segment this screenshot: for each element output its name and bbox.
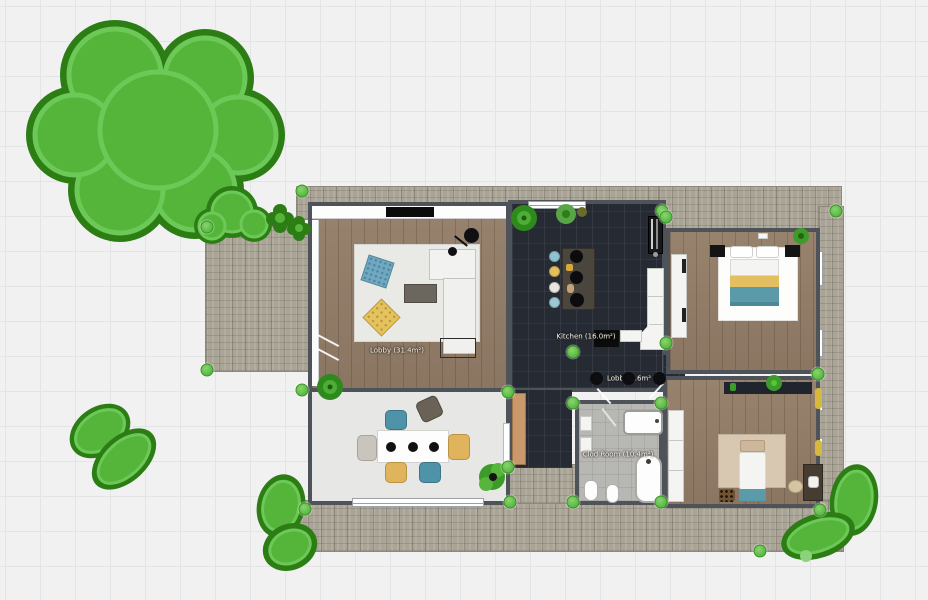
bidet[interactable] <box>606 484 619 503</box>
floor-lamp-shade[interactable] <box>464 228 479 243</box>
shower-drain <box>646 459 651 464</box>
island-decor-yellow <box>566 264 573 271</box>
vertex-handle[interactable] <box>814 504 827 517</box>
vertex-handle[interactable] <box>567 397 580 410</box>
vertex-handle[interactable] <box>201 221 214 234</box>
large-tree[interactable] <box>26 20 285 242</box>
bed1-sheet[interactable] <box>730 259 779 276</box>
door-swing-line-1 <box>317 334 339 347</box>
patio-left-patch[interactable] <box>205 226 309 372</box>
room-living[interactable] <box>308 202 510 392</box>
vertex-handle[interactable] <box>754 545 767 558</box>
bath-door-swing <box>602 408 617 426</box>
bathroom-label: Clod Room (10.4m²) <box>583 452 654 459</box>
curtain-yellow-a <box>815 388 822 409</box>
bar-stool-3[interactable] <box>549 282 560 293</box>
vertex-handle[interactable] <box>660 211 673 224</box>
plate-1 <box>386 442 396 452</box>
wardrobe-1-handle-b <box>682 308 686 322</box>
tv-unit[interactable] <box>386 207 434 217</box>
chair-yellow-bottom[interactable] <box>385 462 407 483</box>
room-kitchen[interactable] <box>508 200 666 392</box>
vertex-handle[interactable] <box>296 185 309 198</box>
island-sink-2 <box>570 271 583 284</box>
ceiling-lamp-1[interactable] <box>590 372 603 385</box>
counter-knob <box>653 252 658 257</box>
vertex-handle[interactable] <box>830 205 843 218</box>
vertex-handle[interactable] <box>567 496 580 509</box>
vertex-handle[interactable] <box>655 496 668 509</box>
vertex-handle[interactable] <box>502 386 515 399</box>
plate-2 <box>408 442 418 452</box>
leopard-mat[interactable] <box>719 489 735 502</box>
chair-teal-bottom[interactable] <box>419 462 441 483</box>
counter-right[interactable] <box>647 268 664 328</box>
bed1-pillow-right <box>756 246 779 258</box>
living-west-wall-window <box>312 220 319 386</box>
floor-lamp-base <box>448 247 457 256</box>
bed1-blanket-teal <box>730 287 779 306</box>
nightstand-right[interactable] <box>785 245 800 257</box>
wall-decor-white <box>758 233 768 239</box>
dining-window-south <box>352 498 484 507</box>
bar-stool-4[interactable] <box>549 297 560 308</box>
room-bedroom-2[interactable] <box>663 376 820 508</box>
chair-dark-top[interactable] <box>414 394 444 424</box>
door-swing-line-2 <box>317 348 339 361</box>
patio-top-right[interactable] <box>658 186 842 234</box>
island-decor-tan <box>567 284 574 293</box>
plate-3 <box>429 442 439 452</box>
vertex-handle[interactable] <box>296 384 309 397</box>
living-room-label: Lobby (31.4m²) <box>370 348 424 355</box>
shelf-dark[interactable] <box>724 382 812 394</box>
kitchen-window-north <box>528 201 586 209</box>
ceiling-lamp-3[interactable] <box>653 372 666 385</box>
wardrobe-2-divider-b <box>668 470 684 471</box>
fridge-handle <box>651 219 653 249</box>
vertex-handle[interactable] <box>201 364 214 377</box>
fridge-handle-2 <box>656 219 658 249</box>
bed2-duvet[interactable] <box>739 452 766 490</box>
bush-left[interactable] <box>59 392 167 501</box>
island-sink-3 <box>570 293 584 307</box>
shelf-plant-small <box>730 383 736 391</box>
chair-teal-top[interactable] <box>385 410 407 430</box>
round-chair-beige[interactable] <box>788 480 803 493</box>
island-sink-1 <box>570 250 583 263</box>
vertex-handle[interactable] <box>655 397 668 410</box>
room-dining[interactable] <box>308 388 510 505</box>
counter-divider <box>647 296 664 297</box>
desk-chair[interactable] <box>808 476 819 488</box>
wardrobe-2[interactable] <box>668 410 684 502</box>
kitchen-label: Kitchen (16.0m²) <box>556 334 615 341</box>
nightstand-left[interactable] <box>710 245 725 257</box>
bed2-pillow <box>740 440 765 452</box>
ceiling-lamp-2[interactable] <box>622 372 635 385</box>
plan-canvas[interactable]: Lobby (31.4m²) Ki <box>0 0 928 600</box>
hall-cabinet[interactable] <box>512 393 526 465</box>
vertex-handle[interactable] <box>502 461 515 474</box>
bed1-blanket-yellow <box>730 276 779 287</box>
curtain-yellow-b <box>815 440 822 456</box>
room-bedroom-1[interactable] <box>666 228 820 374</box>
chair-yellow-right[interactable] <box>448 434 470 460</box>
vertex-handle[interactable] <box>812 368 825 381</box>
bed1-pillow-left <box>730 246 753 258</box>
chair-gray-left[interactable] <box>357 435 377 461</box>
counter-bottom[interactable] <box>620 330 642 342</box>
bathtub-faucet <box>655 419 659 423</box>
vertex-handle[interactable] <box>567 346 580 359</box>
bar-stool-2[interactable] <box>549 266 560 277</box>
wardrobe-2-divider <box>668 440 684 441</box>
coffee-table[interactable] <box>404 284 437 303</box>
toilet[interactable] <box>584 480 598 501</box>
vertex-handle[interactable] <box>660 337 673 350</box>
bath-cabinet-a[interactable] <box>580 416 592 431</box>
wardrobe-1-handle-a <box>682 259 686 273</box>
vertex-handle[interactable] <box>504 496 517 509</box>
vertex-handle[interactable] <box>299 503 312 516</box>
side-table-frame[interactable] <box>440 338 476 358</box>
bar-stool-1[interactable] <box>549 251 560 262</box>
bed2-blanket-teal <box>739 489 766 501</box>
